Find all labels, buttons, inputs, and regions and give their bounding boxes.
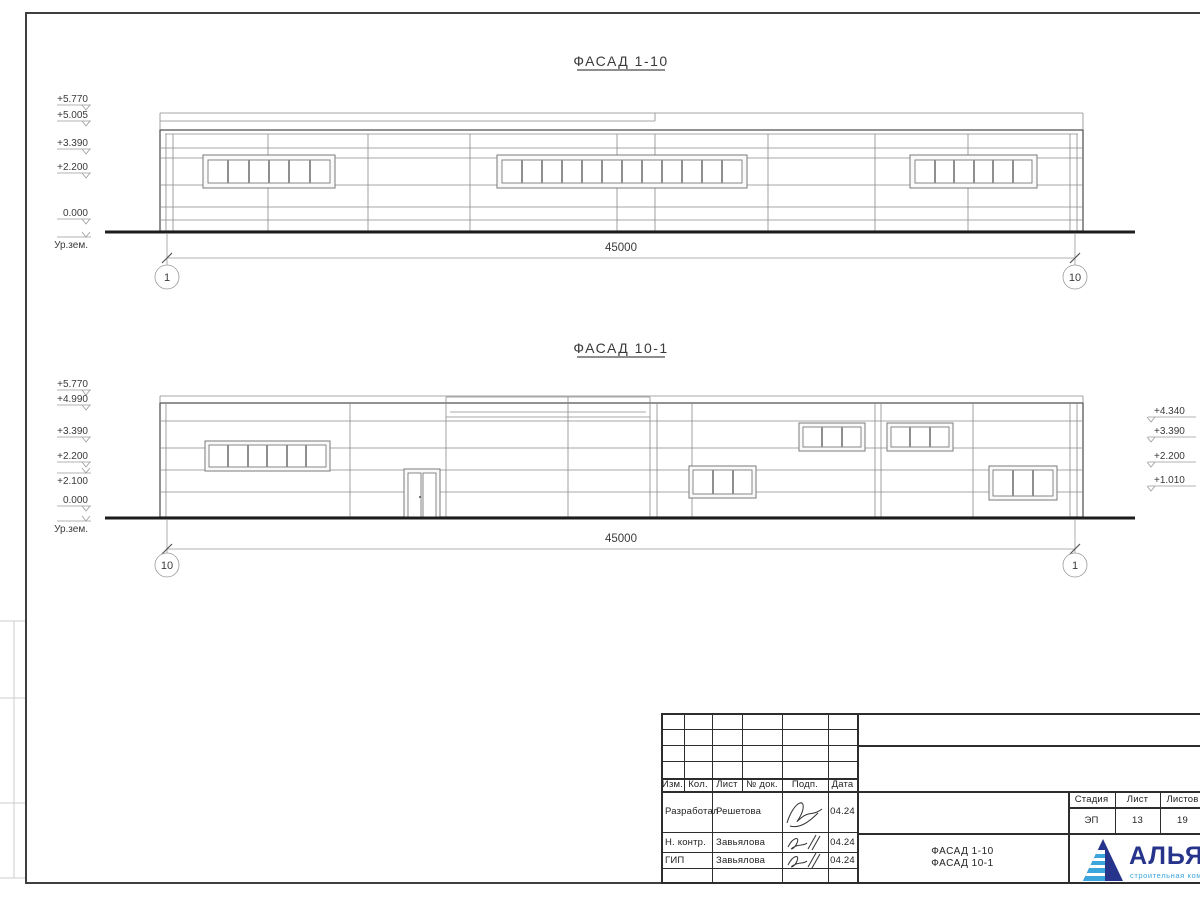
facade2-elevation-marks-left: +5.770 +4.990 +3.390 +2.200 +2.100 0.000… (54, 379, 91, 535)
facade2-axis-right: 1 (1072, 560, 1078, 572)
stamp-col-podp: Подп. (782, 778, 828, 791)
facade2-dim-value: 45000 (605, 533, 637, 545)
facade1-dim-value: 45000 (605, 242, 637, 254)
stamp-role-developer: Разработал (661, 791, 716, 832)
svg-text:Ур.зем.: Ур.зем. (54, 524, 88, 535)
company-logo-icon (1081, 837, 1125, 883)
svg-text:+3.390: +3.390 (57, 138, 88, 149)
company-name: АЛЬЯНС (1129, 842, 1200, 871)
facade1-elevation-marks: +5.770 +5.005 +3.390 +2.200 0.000 Ур.зем… (54, 94, 91, 251)
svg-text:+5.770: +5.770 (57, 94, 88, 105)
facade2-window-middle (689, 466, 756, 498)
svg-text:+4.990: +4.990 (57, 394, 88, 405)
stamp-col-kol: Кол. (684, 778, 712, 791)
facade1-window-band-left (203, 155, 335, 188)
facade2-axis-left: 10 (161, 560, 173, 572)
stamp-name-ncontrol: Завьялова (712, 832, 786, 852)
stamp-drawing-title-line1: ФАСАД 1-10 (931, 846, 993, 858)
drawing-sheet: ФАСАД 1-10 (0, 0, 1200, 900)
facade-1-10-drawing: ФАСАД 1-10 (54, 53, 1135, 289)
stamp-col-izm: Изм. (661, 778, 684, 791)
stamp-role-gip: ГИП (661, 852, 716, 868)
stamp-col-doc: № док. (742, 778, 782, 791)
stamp-drawing-title: ФАСАД 1-10 ФАСАД 10-1 (857, 833, 1068, 882)
svg-text:+4.340: +4.340 (1154, 406, 1185, 417)
facade2-title: ФАСАД 10-1 (573, 340, 668, 356)
stamp-stage-label: Стадия (1068, 791, 1115, 807)
facade1-window-band-middle (497, 155, 747, 188)
signature-developer (782, 793, 828, 832)
stamp-col-list: Лист (712, 778, 742, 791)
svg-text:Ур.зем.: Ур.зем. (54, 240, 88, 251)
stamp-drawing-title-line2: ФАСАД 10-1 (931, 858, 993, 870)
title-block: Изм. Кол. Лист № док. Подп. Дата Разрабо… (661, 713, 1200, 884)
facade-10-1-drawing: ФАСАД 10-1 (54, 340, 1196, 577)
svg-text:+2.200: +2.200 (1154, 451, 1185, 462)
company-tagline: строительная компания (1130, 871, 1200, 880)
stamp-sheet-value: 13 (1115, 807, 1160, 833)
stamp-name-gip: Завьялова (712, 852, 786, 868)
svg-text:+3.390: +3.390 (57, 426, 88, 437)
svg-text:0.000: 0.000 (63, 495, 88, 506)
svg-text:0.000: 0.000 (63, 208, 88, 219)
facade1-axis-right: 10 (1069, 272, 1081, 284)
stamp-sheets-value: 19 (1160, 807, 1200, 833)
facade2-window-upper-b (887, 423, 953, 451)
svg-text:+2.100: +2.100 (57, 476, 88, 487)
svg-text:+5.770: +5.770 (57, 379, 88, 390)
facade1-dimension: 45000 1 10 (155, 234, 1087, 289)
stamp-date-gip: 04.24 (828, 852, 857, 868)
stamp-sheet-label: Лист (1115, 791, 1160, 807)
signature-ncontrol (782, 832, 828, 852)
facade2-entrance-door (404, 469, 440, 517)
svg-text:+2.200: +2.200 (57, 162, 88, 173)
facade2-window-right (989, 466, 1057, 500)
stamp-col-data: Дата (828, 778, 857, 791)
svg-text:+5.005: +5.005 (57, 110, 88, 121)
stamp-date-ncontrol: 04.24 (828, 832, 857, 852)
svg-text:+3.390: +3.390 (1154, 426, 1185, 437)
facade1-axis-left: 1 (164, 272, 170, 284)
facade2-elevation-marks-right: +4.340 +3.390 +2.200 +1.010 (1147, 406, 1196, 491)
svg-text:+1.010: +1.010 (1154, 475, 1185, 486)
facade2-window-band-left (205, 441, 330, 471)
stamp-stage-value: ЭП (1068, 807, 1115, 833)
signature-gip (782, 850, 828, 870)
svg-text:+2.200: +2.200 (57, 451, 88, 462)
facade2-window-upper-a (799, 423, 865, 451)
facade2-dimension: 45000 10 1 (155, 520, 1087, 577)
stamp-role-ncontrol: Н. контр. (661, 832, 716, 852)
stamp-name-developer: Решетова (712, 791, 786, 832)
facade1-title: ФАСАД 1-10 (573, 53, 668, 69)
stamp-sheets-label: Листов (1160, 791, 1200, 807)
facade1-window-band-right (910, 155, 1037, 188)
stamp-date-developer: 04.24 (828, 791, 857, 832)
